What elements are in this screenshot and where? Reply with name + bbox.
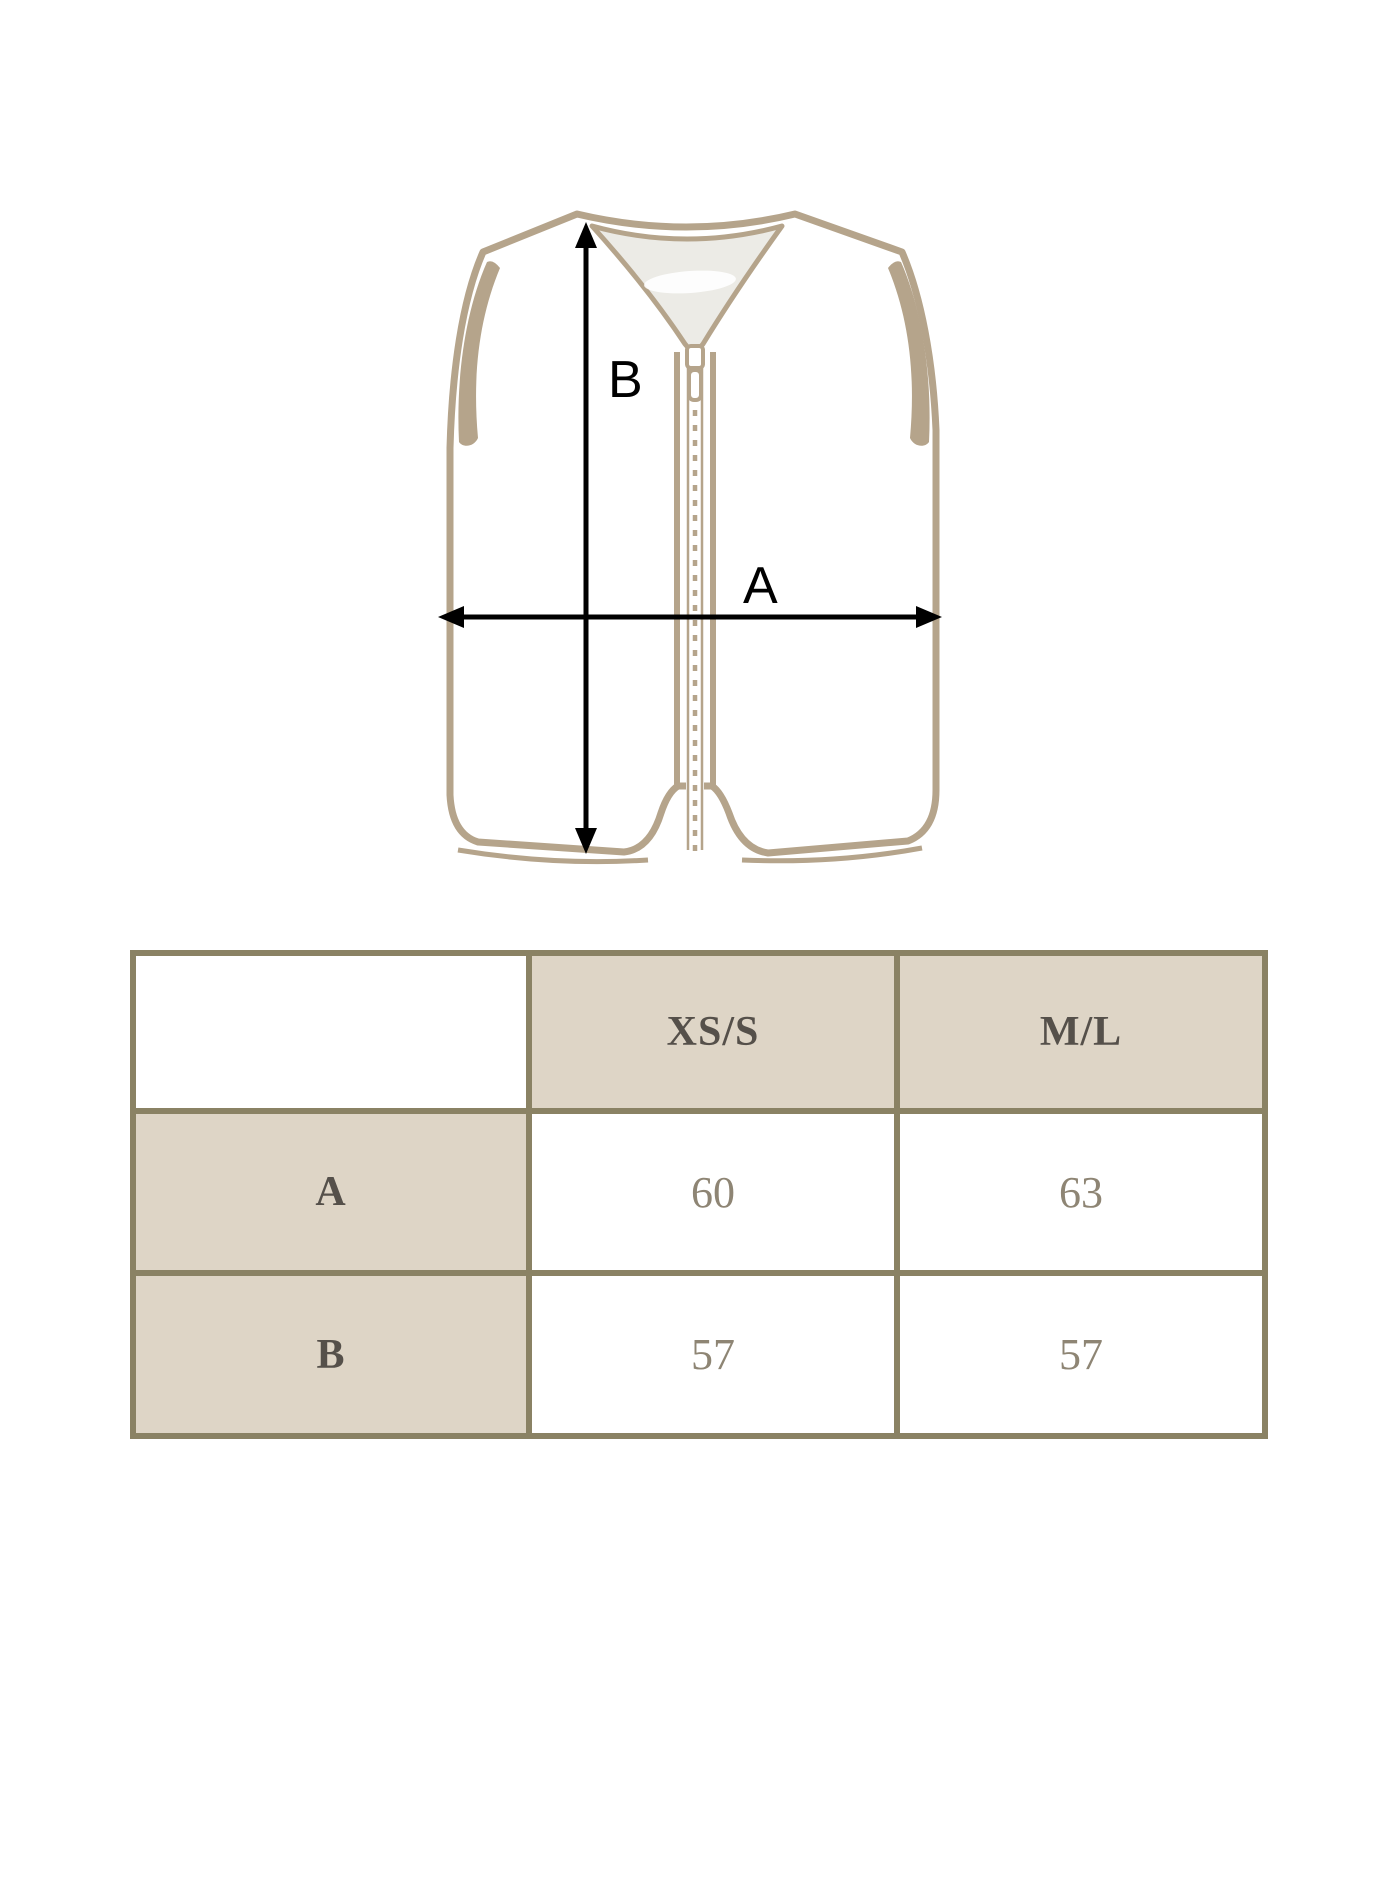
value-b-xs-s: 57 xyxy=(529,1273,897,1436)
measurement-label-b: B xyxy=(608,351,643,409)
size-table-header-row: XS/S M/L xyxy=(133,953,1265,1111)
value-b-m-l: 57 xyxy=(897,1273,1265,1436)
value-a-xs-s: 60 xyxy=(529,1111,897,1273)
size-guide-page: B A XS/S M/L A 60 xyxy=(0,0,1400,1900)
row-label-a: A xyxy=(133,1111,529,1273)
row-label-b: B xyxy=(133,1273,529,1436)
table-row-a: A 60 63 xyxy=(133,1111,1265,1273)
vest-measurement-diagram: B A xyxy=(400,140,1000,900)
zipper-slider xyxy=(687,346,703,368)
column-header-xs-s: XS/S xyxy=(529,953,897,1111)
measurement-label-a: A xyxy=(743,557,778,615)
size-table: XS/S M/L A 60 63 B xyxy=(130,950,1268,1439)
corner-cell xyxy=(133,953,529,1111)
vest-illustration xyxy=(450,214,936,862)
column-header-m-l: M/L xyxy=(897,953,1265,1111)
zipper-pull xyxy=(689,370,701,400)
value-a-m-l: 63 xyxy=(897,1111,1265,1273)
table-row-b: B 57 57 xyxy=(133,1273,1265,1436)
